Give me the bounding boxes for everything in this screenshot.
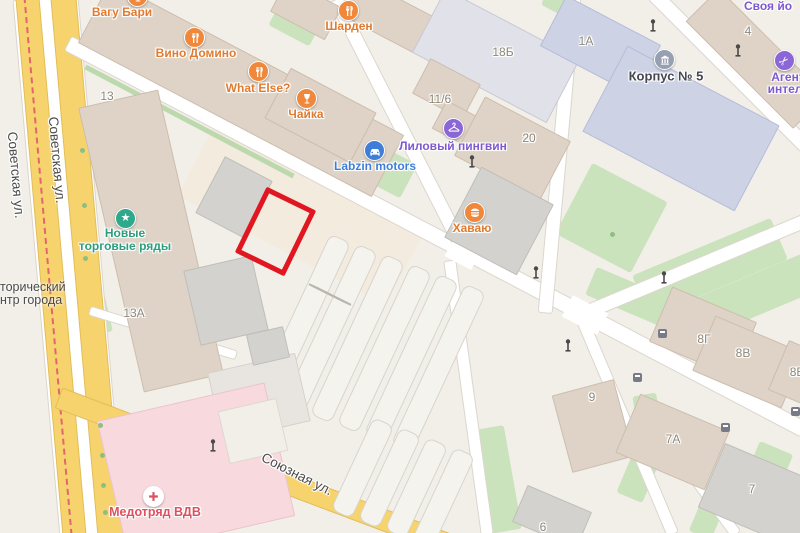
poi-label-vagu-bari[interactable]: Вагу Бари [92,5,152,19]
street-lamp-icon [564,339,572,357]
tree [80,148,85,153]
building-number-18b: 18Б [492,45,513,59]
street-label-sovetskaya-2: Советская ул. [5,131,28,219]
street-lamp-icon [209,439,217,457]
restaurant-icon[interactable] [338,0,359,21]
district-label-line1: торический [0,280,66,294]
poi-label-lilovy-pingvin[interactable]: Лиловый пингвин [399,139,507,153]
poi-label-khavayu[interactable]: Хаваю [453,221,492,235]
poi-label-agent-line2[interactable]: интеллиг [768,82,800,96]
tree [100,453,105,458]
tree [103,510,108,515]
tree [83,256,88,261]
poi-label-novye-line2[interactable]: торговые ряды [79,239,171,253]
dry-cleaning-icon[interactable] [443,118,464,139]
building-6 [512,485,592,533]
poi-label-what-else[interactable]: What Else? [226,81,291,95]
building-number-13: 13 [100,89,113,103]
building-number-13a: 13А [123,306,144,320]
district-label-line2: нтр города [0,293,62,307]
map-canvas[interactable]: ★ ✂ Вагу Бари Вино Домино Шарден What El… [0,0,800,533]
scissors-icon[interactable]: ✂ [774,50,795,71]
street-lamp-icon [734,44,742,62]
building-number-7: 7 [749,482,756,496]
restaurant-icon[interactable] [184,27,205,48]
bar-icon[interactable] [296,88,317,109]
star-icon: ★ [121,213,131,224]
building-number-6: 6 [540,520,547,533]
green-area [555,163,667,273]
car-service-icon[interactable] [364,140,385,161]
building-number-8g: 8Г [697,332,710,346]
poi-label-novye-line1[interactable]: Новые [105,226,145,240]
building-number-1a: 1А [579,34,594,48]
street-lamp-icon [660,271,668,289]
poi-label-labzin-motors[interactable]: Labzin motors [334,159,416,173]
tree [610,232,615,237]
street-lamp-icon [468,155,476,173]
poi-label-svoya[interactable]: Своя йо [744,0,792,13]
poi-label-korpus-5[interactable]: Корпус № 5 [629,69,704,84]
building-number-20: 20 [522,131,535,145]
tree [98,423,103,428]
organization-icon[interactable] [654,49,675,70]
scissors-glyph: ✂ [777,53,793,69]
fastfood-icon[interactable] [464,202,485,223]
bus-stop-icon[interactable] [633,373,642,382]
building-number-8v: 8В [736,346,751,360]
medical-icon[interactable] [143,486,164,507]
building-number-9: 9 [589,390,596,404]
bus-stop-icon[interactable] [658,329,667,338]
tree [82,203,87,208]
tree [101,483,106,488]
building-number-11-6: 11/6 [429,92,451,106]
poi-label-chaika[interactable]: Чайка [288,107,323,121]
bus-stop-icon[interactable] [791,407,800,416]
building-number-4: 4 [745,24,752,38]
building-number-8b: 8Б [790,365,800,379]
building-number-7a: 7А [666,432,681,446]
street-lamp-icon [649,19,657,37]
restaurant-icon[interactable] [248,61,269,82]
poi-label-vino-domino[interactable]: Вино Домино [156,46,237,60]
bus-stop-icon[interactable] [721,423,730,432]
street-lamp-icon [532,266,540,284]
poi-label-medotryad[interactable]: Медотряд ВДВ [109,505,201,519]
poi-label-sharden[interactable]: Шарден [325,19,372,33]
